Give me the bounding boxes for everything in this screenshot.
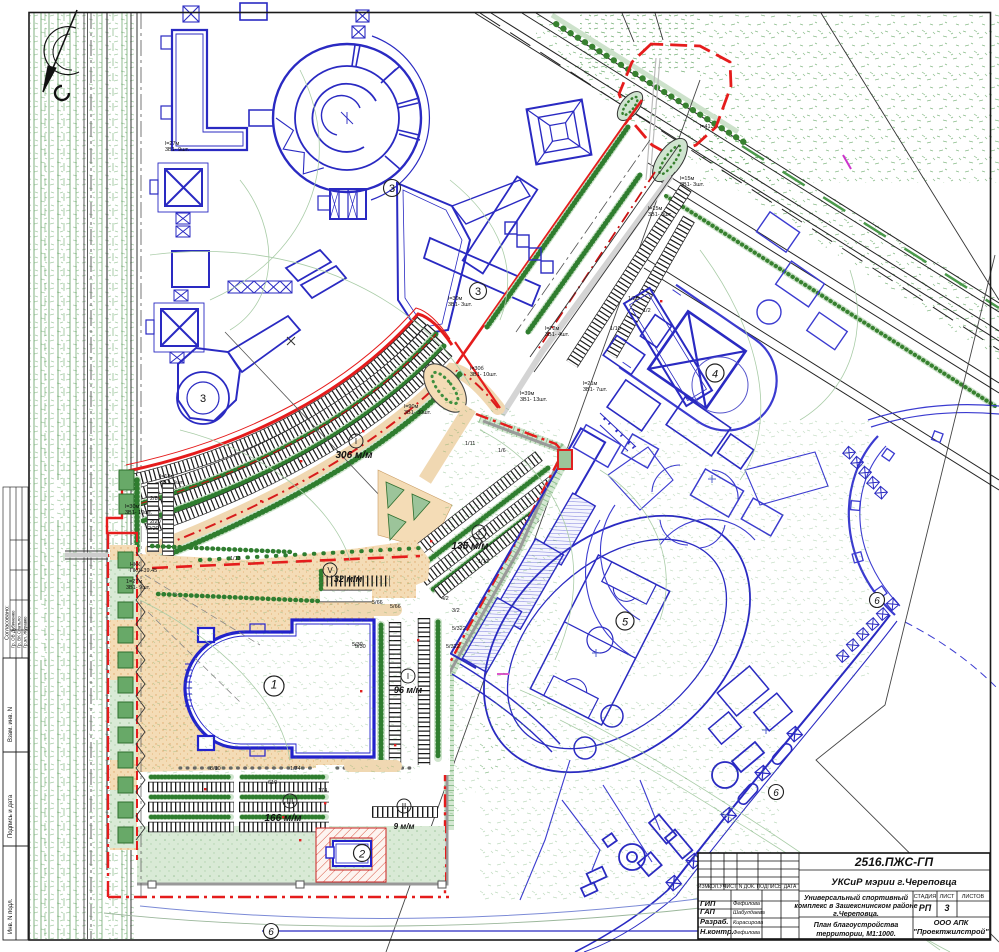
svg-text:3В1- 5шт.: 3В1- 5шт. (160, 480, 185, 486)
svg-text:Н.контр.: Н.контр. (700, 927, 734, 936)
svg-text:5/322: 5/322 (452, 626, 466, 632)
svg-text:РП: РП (919, 903, 932, 913)
svg-text:3В1- 3шт.: 3В1- 3шт. (648, 212, 673, 218)
svg-text:I: I (478, 528, 480, 537)
svg-text:3В1- 30шт.: 3В1- 30шт. (404, 410, 432, 416)
svg-text:ПОДПИСЬ: ПОДПИСЬ (757, 884, 783, 890)
svg-text:3В1- 13шт.: 3В1- 13шт. (520, 397, 548, 403)
svg-text:3В1- 9шт.: 3В1- 9шт. (165, 147, 190, 153)
svg-text:ООО АПК: ООО АПК (934, 918, 970, 927)
svg-text:9 м/м: 9 м/м (394, 822, 415, 831)
svg-text:6: 6 (773, 788, 779, 799)
svg-text:2/20: 2/20 (148, 526, 159, 532)
svg-text:3В1- 10шт.: 3В1- 10шт. (470, 372, 498, 378)
svg-text:Кирасирова: Кирасирова (733, 920, 763, 926)
svg-text:Фефилова: Фефилова (733, 930, 760, 936)
svg-text:3В1- 3шт.: 3В1- 3шт. (448, 302, 473, 308)
svg-text:V: V (327, 566, 333, 575)
svg-text:ГАП: ГАП (700, 907, 715, 916)
svg-text:1/2: 1/2 (643, 308, 651, 314)
svg-text:166 м/м: 166 м/м (264, 813, 302, 824)
svg-text:4: 4 (712, 369, 718, 381)
svg-text:3В1- 9шт.: 3В1- 9шт. (126, 585, 151, 591)
svg-text:6: 6 (268, 927, 274, 938)
svg-text:3: 3 (475, 286, 481, 298)
svg-text:Гр.эл. Журавко: Гр.эл. Журавко (23, 616, 28, 648)
svg-text:Фефилова: Фефилова (733, 901, 760, 907)
svg-text:610: 610 (268, 780, 277, 786)
svg-text:2516.ПЖС-ГП: 2516.ПЖС-ГП (854, 855, 934, 869)
svg-text:I: I (355, 437, 357, 446)
svg-text:3: 3 (944, 903, 949, 913)
svg-text:3В1- 10шт.: 3В1- 10шт. (125, 510, 153, 516)
svg-text:1: 1 (271, 678, 278, 692)
svg-text:"Проектжилстрой": "Проектжилстрой" (913, 927, 989, 936)
svg-text:ДАТА: ДАТА (784, 884, 797, 890)
svg-text:3В1- 3шт.: 3В1- 3шт. (680, 182, 705, 188)
svg-text:32 м/м: 32 м/м (334, 574, 363, 584)
svg-text:2: 2 (358, 849, 365, 861)
svg-text:306 м/м: 306 м/м (335, 450, 373, 461)
svg-text:г.Череповца.: г.Череповца. (833, 911, 879, 918)
svg-text:135 м/м: 135 м/м (451, 541, 489, 552)
svg-text:План благоустройства: План благоустройства (814, 921, 899, 929)
svg-text:ЛИСТ: ЛИСТ (940, 894, 955, 900)
svg-text:территории, М1:1000.: территории, М1:1000. (816, 931, 896, 938)
svg-text:3: 3 (389, 183, 395, 195)
svg-text:УКСиР мэрии г.Череповца: УКСиР мэрии г.Череповца (831, 877, 956, 888)
svg-text:Универсальный спортивный: Универсальный спортивный (804, 894, 909, 902)
svg-text:II: II (402, 802, 406, 811)
svg-text:l=41...: l=41... (700, 124, 716, 130)
svg-text:174: 174 (318, 788, 327, 794)
svg-text:Гр. ВК Спатьло: Гр. ВК Спатьло (17, 616, 22, 648)
svg-text:5/66: 5/66 (372, 600, 383, 606)
svg-text:ЛИСТ: ЛИСТ (723, 884, 736, 890)
svg-text:Разраб.: Разраб. (700, 917, 728, 926)
svg-text:2/20: 2/20 (150, 519, 161, 525)
svg-text:1/25: 1/25 (628, 296, 639, 302)
svg-text:комплекс в Зашекснинском район: комплекс в Зашекснинском районе (794, 902, 917, 910)
svg-text:1/13: 1/13 (230, 556, 241, 562)
svg-text:I: I (407, 672, 409, 681)
svg-text:ЛИСТОВ: ЛИСТОВ (962, 894, 985, 900)
svg-text:ПК0+39.45: ПК0+39.45 (130, 568, 157, 574)
svg-text:Подпись и дата: Подпись и дата (8, 794, 14, 838)
svg-text:Взам. инв. N: Взам. инв. N (8, 707, 14, 742)
svg-text:Шабулдаева: Шабулдаева (733, 910, 765, 916)
svg-text:3В1- 4шт.: 3В1- 4шт. (545, 332, 570, 338)
svg-text:3В1- 7шт.: 3В1- 7шт. (583, 387, 608, 393)
svg-text:3: 3 (200, 393, 206, 405)
svg-text:III: III (287, 797, 294, 806)
svg-text:Гр. ОВ Дубиненко: Гр. ОВ Дубиненко (11, 610, 16, 648)
svg-text:1/10: 1/10 (610, 326, 621, 332)
svg-text:5: 5 (622, 617, 629, 629)
svg-text:2/8: 2/8 (150, 496, 158, 502)
svg-text:Инв. N подл.: Инв. N подл. (8, 898, 14, 934)
svg-text:96 м/м: 96 м/м (394, 685, 423, 695)
svg-text:N ДОК.: N ДОК. (739, 884, 756, 890)
svg-text:5/30: 5/30 (352, 642, 363, 648)
svg-text:СТАДИЯ: СТАДИЯ (914, 894, 936, 900)
svg-text:6: 6 (874, 596, 880, 607)
